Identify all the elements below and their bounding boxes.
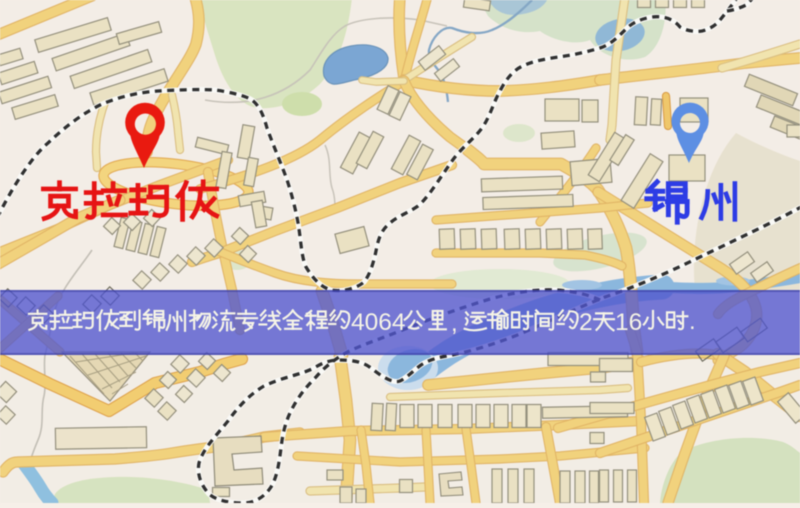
svg-text:16: 16	[615, 309, 642, 336]
svg-text:.: .	[689, 308, 696, 335]
svg-text:2: 2	[579, 309, 593, 336]
svg-text:,: ,	[451, 310, 458, 337]
svg-text:4064: 4064	[351, 309, 406, 336]
